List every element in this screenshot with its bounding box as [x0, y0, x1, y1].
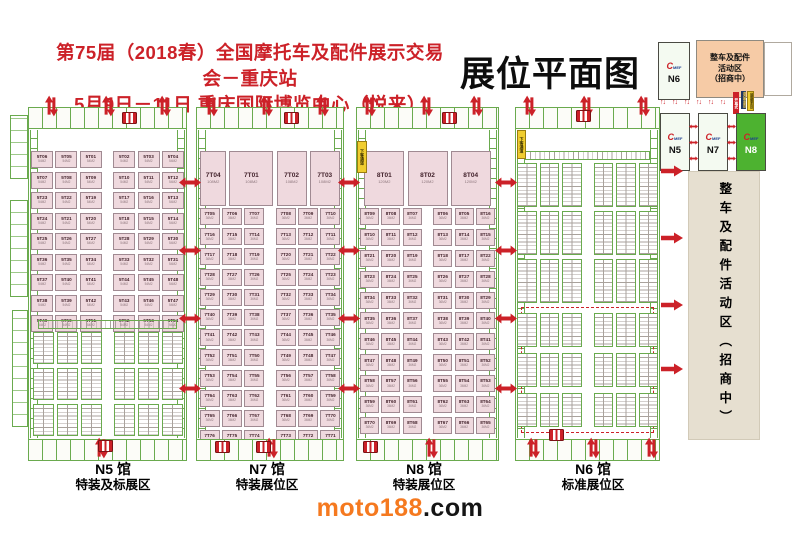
booth: 7T2536M2	[276, 269, 296, 286]
booth: 5T1354M2	[162, 192, 184, 209]
hall-label-n8: N8 馆 特装展位区	[359, 462, 489, 494]
corridor-arrow-icon	[338, 245, 360, 256]
minimap-flow-arrows-icon: ↑↓	[696, 99, 701, 106]
aisle	[423, 292, 432, 309]
aisle	[103, 295, 112, 312]
booth: 5T0154M2	[80, 151, 102, 168]
standard-booth-stack	[33, 404, 54, 436]
entrance-arrows-icon	[158, 95, 171, 117]
booth: 7T1836M2	[222, 248, 242, 265]
site-brand[interactable]: moto188.com	[0, 494, 800, 523]
booth: 7T0936M2	[298, 208, 318, 225]
booth: 8T3936M2	[455, 312, 474, 329]
standard-booth-stack	[540, 393, 560, 427]
booth: 8T2736M2	[455, 271, 474, 288]
booth: 7T6136M2	[276, 390, 296, 407]
booth: 8T2136M2	[360, 250, 379, 267]
wall-tag: 下客通道	[357, 141, 367, 173]
corridor-arrow-icon	[338, 313, 360, 324]
hall-label-n7: N7 馆 特装展位区	[202, 462, 332, 494]
booth: 5T4754M2	[162, 295, 184, 312]
standard-booth-stack	[540, 259, 560, 303]
aisle	[583, 313, 592, 345]
booth-row: 7T1636M27T1536M27T1436M27T1336M27T1236M2…	[204, 228, 336, 245]
corridor-arrow-icon	[179, 177, 201, 188]
booth-row: 8T2336M28T2436M28T2536M28T2636M28T2736M2…	[364, 271, 491, 288]
standard-booth-stack	[562, 313, 582, 347]
booth: 7T2836M2	[200, 269, 220, 286]
booth: 7T6436M2	[200, 390, 220, 407]
minimap-corridor-arrow-icon	[727, 140, 736, 145]
booth-row: 8T4636M28T4536M28T4436M28T4336M28T4236M2…	[364, 333, 491, 350]
booth: 5T2254M2	[55, 192, 77, 209]
booth: 8T2436M2	[381, 271, 400, 288]
booth: 7T4236M2	[222, 329, 242, 346]
booth: 7T1636M2	[200, 228, 220, 245]
aisle	[423, 396, 432, 413]
standard-booth-stack	[616, 211, 636, 255]
aisle	[103, 233, 112, 250]
minimap-hall-n5: CMEF N5	[660, 113, 690, 171]
booth: 5T1554M2	[138, 213, 160, 230]
minimap-hall-n6: CMEF N6	[658, 42, 690, 100]
expo-logo-icon: CMEF	[744, 128, 759, 144]
booth-row: 8T2136M28T2036M28T1936M28T1836M28T1736M2…	[364, 250, 491, 267]
booth: 8T01120M2	[364, 151, 404, 206]
standard-booth-stack	[616, 393, 636, 427]
booth: 7T6936M2	[298, 410, 318, 427]
booth: 8T5136M2	[455, 354, 474, 371]
annex-rooms	[10, 200, 28, 297]
hall-n8-floorplan: 8T01120M28T02120M28T04120M2 8T0936M28T08…	[356, 107, 499, 461]
standard-booth-stack	[616, 163, 636, 207]
booth: 5T3154M2	[162, 254, 184, 271]
standard-booth-stack	[562, 259, 582, 303]
standard-booth-stack	[114, 368, 135, 400]
booth: 5T1454M2	[162, 213, 184, 230]
elevator-icon	[122, 112, 137, 124]
booth: 8T6736M2	[433, 417, 452, 434]
booth: 7T02108M2	[277, 151, 307, 206]
booth: 8T1336M2	[433, 229, 452, 246]
standard-booth-stack	[639, 163, 659, 207]
booth: 7T2036M2	[276, 248, 296, 265]
booth-row: 5T3654M25T3554M25T3454M25T3354M25T3254M2…	[36, 254, 179, 271]
booth: 7T2336M2	[320, 269, 340, 286]
booth: 5T0854M2	[55, 172, 77, 189]
booth: 8T1136M2	[381, 229, 400, 246]
aisle	[583, 163, 592, 205]
standard-booth-stack	[562, 163, 582, 207]
booth: 8T5436M2	[455, 375, 474, 392]
booth: 7T4136M2	[200, 329, 220, 346]
booth-row: 7T5236M27T5136M27T5036M27T4936M27T4836M2…	[204, 349, 336, 366]
booth: 7T6036M2	[298, 390, 318, 407]
corridor-arrow-icon	[495, 177, 517, 188]
aisle	[103, 332, 112, 362]
aisle	[423, 375, 432, 392]
standard-booth-group	[524, 163, 651, 205]
booth: 8T2636M2	[433, 271, 452, 288]
booth: 8T5836M2	[360, 375, 379, 392]
booth: 7T2136M2	[298, 248, 318, 265]
booth: 8T04120M2	[451, 151, 491, 206]
booth: 7T5336M2	[200, 370, 220, 387]
booth: 8T2836M2	[476, 271, 495, 288]
booth: 5T2054M2	[80, 213, 102, 230]
booth-row: 5T3854M25T3954M25T4254M25T4354M25T4654M2…	[36, 295, 179, 312]
booth: 8T0636M2	[433, 208, 452, 225]
aisle	[266, 248, 275, 265]
booth: 8T2236M2	[476, 250, 495, 267]
corridor-arrow-icon	[495, 245, 517, 256]
standard-booth-stack	[616, 353, 636, 387]
standard-booth-stack	[114, 332, 135, 364]
booth: 7T5736M2	[298, 370, 318, 387]
booth: 7T1336M2	[276, 228, 296, 245]
booth-row: 8T4736M28T4836M28T4936M28T5036M28T5136M2…	[364, 354, 491, 371]
booth: 5T3454M2	[80, 254, 102, 271]
booth-row: 5T3754M25T4054M25T4154M25T4454M25T4554M2…	[36, 274, 179, 291]
minimap-hall-n8-highlighted: CMEF N8	[736, 113, 766, 171]
booth-row: 7T4136M27T4236M27T4336M27T4436M27T4536M2…	[204, 329, 336, 346]
minimap-corridor-arrow-icon	[727, 156, 736, 161]
hall-label-n6: N6 馆 标准展位区	[528, 462, 658, 494]
minimap-n7-label: N7	[707, 146, 719, 156]
booth: 8T0736M2	[403, 208, 422, 225]
aisle	[103, 274, 112, 291]
booth-row: 7T5336M27T5436M27T5536M27T5636M27T5736M2…	[204, 370, 336, 387]
booth: 5T1654M2	[138, 192, 160, 209]
booth: 7T4736M2	[320, 349, 340, 366]
standard-booth-group	[37, 368, 178, 398]
standard-booth-stack	[81, 404, 102, 436]
minimap-flow-arrows-icon: ↑↓	[720, 99, 725, 106]
booth: 7T1736M2	[200, 248, 220, 265]
booth-row: 7T1736M27T1836M27T1936M27T2036M27T2136M2…	[204, 248, 336, 265]
booth: 7T1136M2	[320, 228, 340, 245]
minimap-corridor-arrow-icon	[689, 140, 698, 145]
booth-row: 8T3536M28T3636M28T3736M28T3836M28T3936M2…	[364, 312, 491, 329]
booth: 8T1936M2	[403, 250, 422, 267]
standard-booth-stack	[517, 163, 537, 207]
booth: 7T3336M2	[298, 289, 318, 306]
corridor-arrow-icon	[338, 177, 360, 188]
booth: 7T3936M2	[222, 309, 242, 326]
booth: 8T6036M2	[381, 396, 400, 413]
standard-booth-stack	[639, 211, 659, 255]
booth: 7T7036M2	[320, 410, 340, 427]
booth: 5T3954M2	[55, 295, 77, 312]
aisle	[266, 390, 275, 407]
booth: 8T3836M2	[433, 312, 452, 329]
booth: 7T5636M2	[276, 370, 296, 387]
hall-label-n5: N5 馆 特装及标展区	[48, 462, 178, 494]
booth: 7T2436M2	[298, 269, 318, 286]
booth: 5T4854M2	[162, 274, 184, 291]
booth: 7T4036M2	[200, 309, 220, 326]
standard-booth-row	[525, 151, 650, 160]
booth: 8T02120M2	[408, 151, 448, 206]
aisle	[103, 254, 112, 271]
booth: 8T3436M2	[360, 292, 379, 309]
standard-booth-group	[37, 332, 178, 362]
entrance-arrows-icon	[102, 95, 115, 117]
brand-orange[interactable]: moto188	[317, 494, 423, 522]
booth: 8T3036M2	[455, 292, 474, 309]
booth: 8T0936M2	[360, 208, 379, 225]
standard-booth-group	[524, 313, 651, 345]
booth: 8T6336M2	[455, 396, 474, 413]
booth: 8T1036M2	[360, 229, 379, 246]
booth: 8T1736M2	[455, 250, 474, 267]
minimap-tag-visitor: 观众登录处	[741, 91, 746, 109]
booth: 5T2854M2	[113, 233, 135, 250]
aisle	[583, 259, 592, 301]
booth: 8T6536M2	[476, 417, 495, 434]
aisle	[266, 349, 275, 366]
entrance-arrows-icon	[470, 95, 483, 117]
booth: 5T3754M2	[31, 274, 53, 291]
booth: 7T3736M2	[276, 309, 296, 326]
booth: 8T1636M2	[476, 208, 495, 225]
aisle	[103, 172, 112, 189]
booth: 5T2454M2	[31, 213, 53, 230]
minimap-n5-label: N5	[669, 146, 681, 156]
minimap-flow-arrows-icon: ↑↓	[672, 99, 677, 106]
booth: 7T3236M2	[276, 289, 296, 306]
minimap-flow-arrows-icon: ↑↓	[708, 99, 713, 106]
booth: 8T2036M2	[381, 250, 400, 267]
expo-logo-icon: CMEF	[706, 128, 721, 144]
standard-booth-row	[38, 320, 177, 329]
standard-booth-group	[524, 393, 651, 425]
booth: 5T4154M2	[80, 274, 102, 291]
booth: 8T6636M2	[455, 417, 474, 434]
corridor-arrow-icon	[338, 383, 360, 394]
aisle	[423, 229, 432, 246]
entrance-arrows-icon	[527, 437, 540, 459]
booth: 8T4036M2	[476, 312, 495, 329]
aisle	[103, 404, 112, 434]
aisle	[103, 213, 112, 230]
minimap-flow-arrows-icon: ↑↓	[684, 99, 689, 106]
booth: 5T0354M2	[138, 151, 160, 168]
corridor-arrow-icon	[495, 383, 517, 394]
standard-booth-group	[524, 211, 651, 253]
booth: 8T3136M2	[433, 292, 452, 309]
booth: 8T3636M2	[381, 312, 400, 329]
booth: 8T2936M2	[476, 292, 495, 309]
booth: 7T6736M2	[244, 410, 264, 427]
standard-booth-stack	[138, 332, 159, 364]
booth: 7T2636M2	[244, 269, 264, 286]
booth: 5T3854M2	[31, 295, 53, 312]
booth: 8T5336M2	[476, 375, 495, 392]
activity-area-panel: 整车及配件活动区（招商中）	[688, 171, 760, 440]
booth: 8T3236M2	[403, 292, 422, 309]
booth: 8T5036M2	[433, 354, 452, 371]
standard-booth-stack	[639, 353, 659, 387]
aisle	[266, 228, 275, 245]
booth: 7T3036M2	[222, 289, 242, 306]
booth: 7T1236M2	[298, 228, 318, 245]
booth-row: 5T2554M25T2654M25T2754M25T2854M25T2954M2…	[36, 233, 179, 250]
booth-row: 7T6436M27T6336M27T6236M27T6136M27T6036M2…	[204, 390, 336, 407]
booth: 8T5936M2	[360, 396, 379, 413]
standard-booth-stack	[162, 332, 183, 364]
booth: 8T4836M2	[381, 354, 400, 371]
flow-arrow-icon	[661, 363, 683, 375]
booth-row: 8T7036M28T6936M28T6836M28T6736M28T6636M2…	[364, 417, 491, 434]
booth: 5T3554M2	[55, 254, 77, 271]
aisle	[423, 333, 432, 350]
annex-rooms	[12, 310, 28, 427]
booth: 8T5236M2	[476, 354, 495, 371]
booth: 5T4254M2	[80, 295, 102, 312]
booth: 7T3636M2	[298, 309, 318, 326]
standard-booth-stack	[594, 313, 614, 347]
standard-booth-stack	[562, 393, 582, 427]
booth: 8T6236M2	[433, 396, 452, 413]
aisle	[423, 271, 432, 288]
standard-booth-stack	[57, 368, 78, 400]
minimap-corridor-arrow-icon	[689, 124, 698, 129]
standard-booth-stack	[81, 368, 102, 400]
booth: 5T0654M2	[31, 151, 53, 168]
minimap-building-outline	[764, 42, 792, 96]
standard-booth-group	[37, 404, 178, 434]
booth: 5T1754M2	[113, 192, 135, 209]
booth: 7T0736M2	[244, 208, 264, 225]
booth: 8T4136M2	[476, 333, 495, 350]
activity-area-panel-text: 整车及配件活动区（招商中）	[718, 182, 731, 429]
booth: 8T3536M2	[360, 312, 379, 329]
aisle	[423, 208, 432, 225]
booth-row: 8T0936M28T0836M28T0736M28T0636M28T0536M2…	[364, 208, 491, 225]
booth: 8T4636M2	[360, 333, 379, 350]
booth: 7T5436M2	[222, 370, 242, 387]
aisle	[103, 192, 112, 209]
booth: 5T2154M2	[55, 213, 77, 230]
standard-booth-group	[524, 259, 651, 301]
booth: 7T4636M2	[320, 329, 340, 346]
booth: 7T6336M2	[222, 390, 242, 407]
entrance-arrows-icon	[523, 95, 536, 117]
elevator-icon	[363, 441, 378, 453]
booth: 7T1536M2	[222, 228, 242, 245]
plan-title: 展位平面图	[460, 46, 640, 97]
event-title-line1: 第75届（2018春）全国摩托车及配件展示交易会－重庆站	[50, 40, 450, 92]
booth: 7T2936M2	[200, 289, 220, 306]
booth-row: 7T2936M27T3036M27T3136M27T3236M27T3336M2…	[204, 289, 336, 306]
booth: 5T2354M2	[31, 192, 53, 209]
booth: 5T0454M2	[162, 151, 184, 168]
booth: 5T4654M2	[138, 295, 160, 312]
aisle	[583, 393, 592, 425]
booth: 8T2336M2	[360, 271, 379, 288]
booth-row: 7T4036M27T3936M27T3836M27T3736M27T3636M2…	[204, 309, 336, 326]
booth: 5T0554M2	[55, 151, 77, 168]
booth: 7T6236M2	[244, 390, 264, 407]
elevator-icon	[576, 110, 591, 122]
booth: 7T1036M2	[320, 208, 340, 225]
booth: 7T0536M2	[200, 208, 220, 225]
brand-black[interactable]: .com	[423, 494, 483, 522]
aisle	[583, 353, 592, 385]
booth-row: 8T5936M28T6036M28T6136M28T6236M28T6336M2…	[364, 396, 491, 413]
aisle	[266, 329, 275, 346]
standard-booth-stack	[594, 259, 614, 303]
standard-booth-stack	[594, 353, 614, 387]
standard-booth-stack	[517, 313, 537, 347]
booth-row: 5T0754M25T0854M25T0954M25T1054M25T1154M2…	[36, 172, 179, 189]
elevator-icon	[284, 112, 299, 124]
booth: 5T1154M2	[138, 172, 160, 189]
entrance-arrows-icon	[420, 95, 433, 117]
entrance-arrows-icon	[316, 95, 329, 117]
booth: 8T6936M2	[381, 417, 400, 434]
entrance-arrows-icon	[587, 437, 600, 459]
standard-booth-stack	[33, 332, 54, 364]
aisle	[266, 410, 275, 427]
booth: 7T4336M2	[244, 329, 264, 346]
booth: 8T5636M2	[403, 375, 422, 392]
expo-logo-icon: CMEF	[668, 128, 683, 144]
standard-booth-stack	[639, 393, 659, 427]
booth: 8T1436M2	[455, 229, 474, 246]
standard-booth-stack	[562, 211, 582, 255]
entrance-arrows-icon	[363, 95, 376, 117]
standard-booth-stack	[594, 393, 614, 427]
booth: 8T1536M2	[476, 229, 495, 246]
aisle	[266, 269, 275, 286]
booth: 7T1436M2	[244, 228, 264, 245]
booth: 5T1954M2	[80, 192, 102, 209]
aisle	[266, 370, 275, 387]
booth: 7T4936M2	[276, 349, 296, 366]
corridor-arrow-icon	[179, 313, 201, 324]
aisle	[423, 312, 432, 329]
booth: 5T4454M2	[113, 274, 135, 291]
entrance-arrows-icon	[637, 95, 650, 117]
minimap-n8-label: N8	[745, 146, 757, 156]
booth: 8T4436M2	[403, 333, 422, 350]
booth: 8T3336M2	[381, 292, 400, 309]
elevator-icon	[98, 440, 113, 452]
entrance-arrows-icon	[205, 95, 218, 117]
standard-booth-stack	[57, 404, 78, 436]
elevator-icon	[549, 429, 564, 441]
standard-booth-stack	[540, 353, 560, 387]
standard-booth-stack	[594, 163, 614, 207]
booth: 8T6136M2	[403, 396, 422, 413]
standard-booth-stack	[81, 332, 102, 364]
booth: 7T4536M2	[298, 329, 318, 346]
booth: 5T2654M2	[55, 233, 77, 250]
booth-row: 5T2454M25T2154M25T2054M25T1854M25T1554M2…	[36, 213, 179, 230]
standard-booth-stack	[540, 313, 560, 347]
booth: 8T6836M2	[403, 417, 422, 434]
entrance-arrows-icon	[645, 437, 658, 459]
booth: 5T4554M2	[138, 274, 160, 291]
entrance-arrows-icon	[45, 95, 58, 117]
booth-row: 7T6536M27T6636M27T6736M27T6836M27T6936M2…	[204, 410, 336, 427]
booth: 8T4736M2	[360, 354, 379, 371]
aisle	[266, 309, 275, 326]
standard-booth-stack	[517, 211, 537, 255]
hall-n5-floorplan: 5T0654M25T0554M25T0154M25T0254M25T0354M2…	[28, 107, 187, 461]
